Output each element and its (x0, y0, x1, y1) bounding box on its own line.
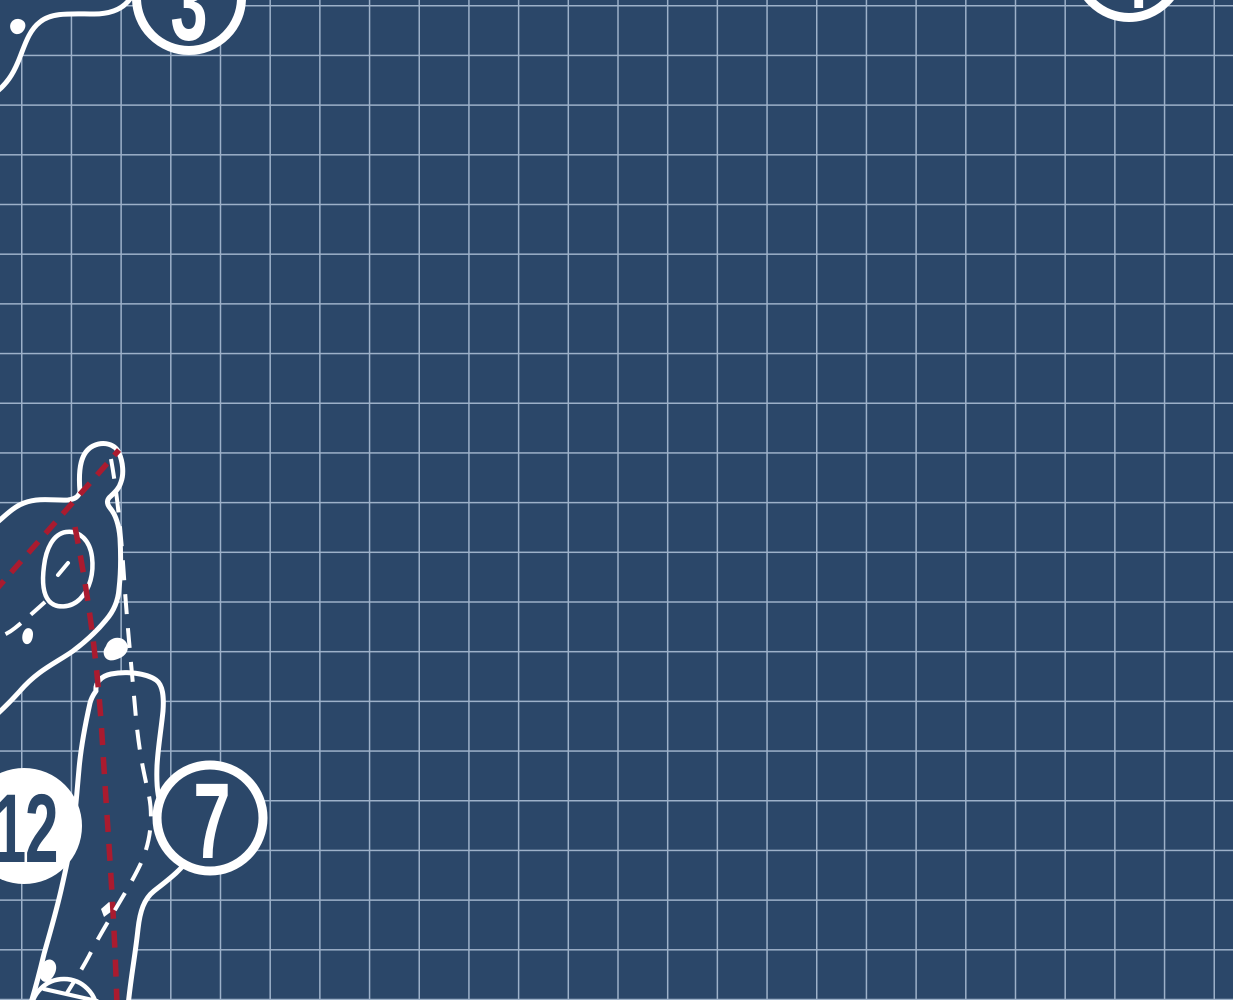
fairway-outline (0, 0, 133, 94)
hole-marker-4: 4 (1077, 0, 1182, 32)
hole-number-label: 12 (0, 775, 57, 883)
hole-3-fairway (0, 0, 133, 94)
hole-number-label: 7 (193, 762, 230, 882)
blueprint-canvas: 3 4 12 7 (0, 0, 1233, 1000)
hole-number-label: 4 (1112, 0, 1149, 32)
hole-number-label: 3 (170, 0, 207, 64)
bunker (104, 638, 128, 661)
course-map: 3 4 12 7 (0, 0, 1233, 1000)
hole-marker-3: 3 (137, 0, 242, 64)
